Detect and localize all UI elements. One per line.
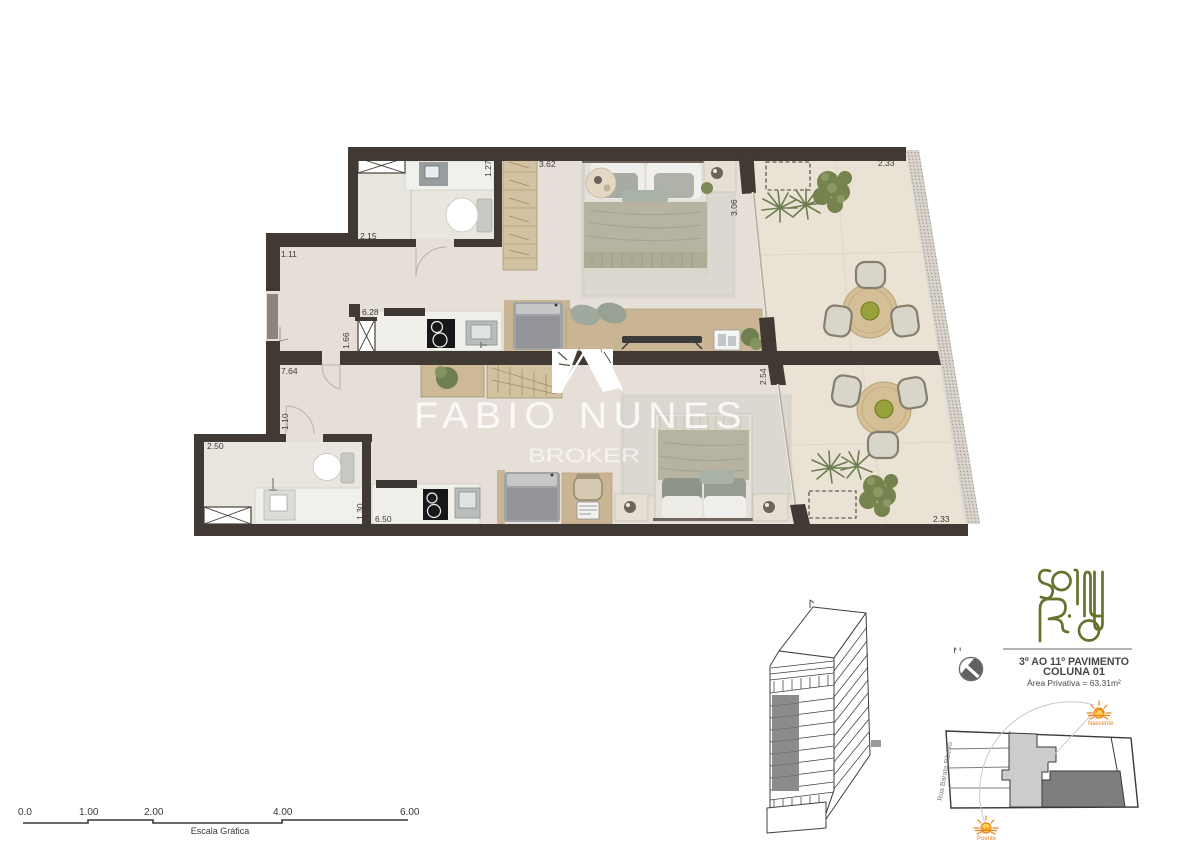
svg-text:Escala Gráfica: Escala Gráfica bbox=[191, 826, 250, 836]
svg-text:BROKER: BROKER bbox=[528, 446, 640, 467]
svg-text:0.0: 0.0 bbox=[18, 807, 32, 818]
svg-text:2.50: 2.50 bbox=[207, 441, 224, 451]
svg-text:1.00: 1.00 bbox=[79, 807, 99, 818]
svg-text:4.00: 4.00 bbox=[273, 807, 293, 818]
svg-text:3.62: 3.62 bbox=[539, 159, 556, 169]
svg-text:FABIO NUNES: FABIO NUNES bbox=[414, 395, 748, 436]
svg-text:2.33: 2.33 bbox=[933, 514, 950, 524]
svg-text:7.64: 7.64 bbox=[281, 366, 298, 376]
svg-text:6.00: 6.00 bbox=[400, 807, 420, 818]
svg-text:COLUNA 01: COLUNA 01 bbox=[1043, 666, 1105, 678]
svg-text:2.54: 2.54 bbox=[758, 368, 768, 385]
svg-text:1.30: 1.30 bbox=[355, 503, 365, 520]
svg-text:2.00: 2.00 bbox=[144, 807, 164, 818]
svg-text:3.06: 3.06 bbox=[729, 199, 739, 216]
svg-text:2.33: 2.33 bbox=[878, 158, 895, 168]
svg-text:Poente: Poente bbox=[977, 836, 997, 842]
svg-text:6.50: 6.50 bbox=[375, 514, 392, 524]
svg-text:1.66: 1.66 bbox=[341, 332, 351, 349]
svg-text:Área Privativa = 63.31m²: Área Privativa = 63.31m² bbox=[1027, 678, 1121, 688]
svg-text:2.15: 2.15 bbox=[360, 231, 377, 241]
svg-text:1.10: 1.10 bbox=[280, 413, 290, 430]
svg-text:6.28: 6.28 bbox=[362, 307, 379, 317]
svg-text:Nascente: Nascente bbox=[1088, 721, 1114, 727]
svg-text:1.11: 1.11 bbox=[281, 249, 297, 259]
svg-text:1.27: 1.27 bbox=[483, 160, 493, 177]
